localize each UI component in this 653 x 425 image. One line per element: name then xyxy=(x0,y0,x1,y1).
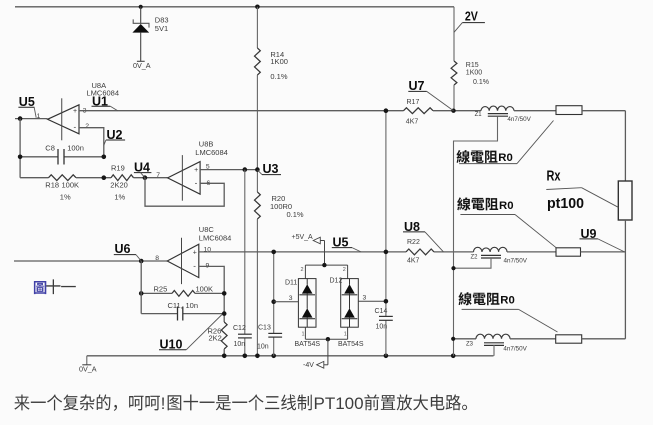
svg-text:D11: D11 xyxy=(285,279,297,286)
svg-text:C13: C13 xyxy=(258,324,271,331)
svg-text:100n: 100n xyxy=(67,143,84,152)
svg-text:4n7/50V: 4n7/50V xyxy=(507,116,531,123)
svg-text:2K2: 2K2 xyxy=(209,334,222,343)
svg-text:2: 2 xyxy=(301,267,304,273)
svg-text:R0: R0 xyxy=(498,152,513,164)
svg-text:-: - xyxy=(195,178,198,187)
svg-text:+: + xyxy=(194,167,198,174)
svg-text:R22: R22 xyxy=(407,239,420,246)
svg-text:R19: R19 xyxy=(111,164,125,173)
svg-text:C8: C8 xyxy=(45,143,55,152)
svg-text:Z1: Z1 xyxy=(475,112,483,118)
svg-text:C11,: C11, xyxy=(168,301,183,310)
svg-text:2: 2 xyxy=(85,123,89,130)
svg-text:LMC6084: LMC6084 xyxy=(195,148,228,157)
svg-text:1K00: 1K00 xyxy=(466,70,482,77)
svg-text:10n: 10n xyxy=(234,341,246,348)
svg-text:10n: 10n xyxy=(186,301,199,310)
svg-text:U8B: U8B xyxy=(199,139,214,148)
svg-text:2K20: 2K20 xyxy=(110,180,128,189)
svg-text:2: 2 xyxy=(343,267,346,273)
svg-text:U8C: U8C xyxy=(199,225,215,234)
svg-text:0.1%: 0.1% xyxy=(270,72,287,81)
svg-text:7: 7 xyxy=(156,172,160,179)
svg-text:R0: R0 xyxy=(500,294,515,306)
svg-text:R15: R15 xyxy=(466,62,479,69)
svg-text:100K: 100K xyxy=(196,284,214,293)
svg-text:C12: C12 xyxy=(233,325,246,332)
svg-text:4n7/50V: 4n7/50V xyxy=(504,257,528,264)
svg-text:Z3: Z3 xyxy=(466,342,474,348)
svg-text:10n: 10n xyxy=(257,344,269,351)
svg-text:1: 1 xyxy=(302,332,305,338)
svg-text:R18: R18 xyxy=(45,180,59,189)
svg-text:4K7: 4K7 xyxy=(407,258,420,265)
svg-text:pt100: pt100 xyxy=(547,196,584,212)
svg-text:D12: D12 xyxy=(330,277,343,284)
svg-text:1K00: 1K00 xyxy=(270,57,288,66)
svg-text:R0: R0 xyxy=(499,200,514,212)
svg-text:BAT54S: BAT54S xyxy=(295,341,321,348)
svg-text:3: 3 xyxy=(363,295,367,302)
svg-text:2V: 2V xyxy=(465,9,478,24)
svg-text:U6: U6 xyxy=(115,242,131,256)
svg-text:1: 1 xyxy=(344,332,347,338)
svg-text:-: - xyxy=(74,123,77,132)
svg-text:+: + xyxy=(73,108,77,115)
svg-text:1%: 1% xyxy=(60,193,71,202)
svg-text:1%: 1% xyxy=(114,193,125,202)
svg-text:Z2: Z2 xyxy=(471,254,479,260)
svg-text:PT100: PT100 xyxy=(314,394,364,413)
svg-text:0.1%: 0.1% xyxy=(287,210,304,219)
svg-text:R17: R17 xyxy=(407,99,420,106)
svg-text:BAT54S: BAT54S xyxy=(338,341,364,348)
svg-text:4K7: 4K7 xyxy=(406,119,419,126)
svg-text:10n: 10n xyxy=(376,323,388,330)
svg-text:5V1: 5V1 xyxy=(155,24,168,33)
svg-text:8: 8 xyxy=(155,255,159,262)
svg-text:-: - xyxy=(193,261,196,270)
svg-text:0.1%: 0.1% xyxy=(473,79,489,86)
svg-text:Rx: Rx xyxy=(547,168,561,184)
svg-text:R25: R25 xyxy=(154,284,168,293)
svg-text:0V_A: 0V_A xyxy=(133,61,151,70)
svg-text:100K: 100K xyxy=(62,180,80,189)
svg-text:+5V_A: +5V_A xyxy=(292,234,314,241)
svg-text:!: ! xyxy=(161,395,166,413)
svg-text:U3: U3 xyxy=(263,162,279,176)
svg-text:3: 3 xyxy=(289,295,293,302)
svg-text:0V_A: 0V_A xyxy=(79,364,97,373)
svg-text:C14: C14 xyxy=(375,308,388,315)
svg-text:LMC6084: LMC6084 xyxy=(199,234,232,243)
svg-text:4n7/50V: 4n7/50V xyxy=(503,345,527,352)
svg-text:+: + xyxy=(193,249,197,256)
svg-text:-4V: -4V xyxy=(303,362,314,369)
